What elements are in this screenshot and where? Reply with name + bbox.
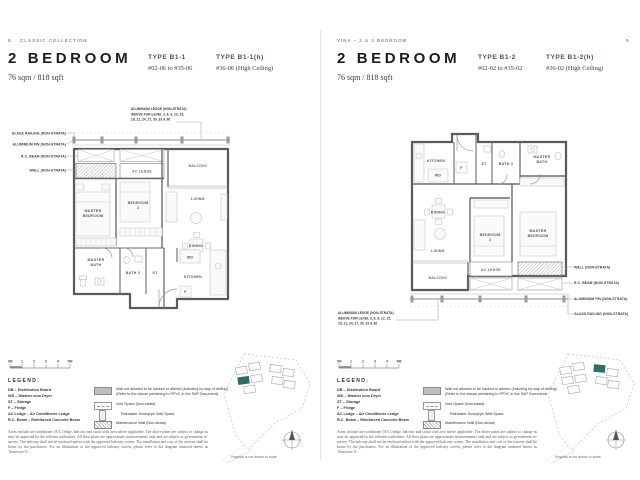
bath2-label: BATH 2 (499, 162, 514, 166)
legend-item: R.C. Beam – Reinforced Concrete Beam (8, 418, 94, 424)
running-head: VINA – 2 & 3 BEDROOM (337, 38, 407, 43)
callout-leader (396, 300, 438, 320)
ac-ledge-label: AC LEDGE (132, 170, 152, 174)
north-compass (606, 430, 626, 450)
highlighted-block (594, 364, 606, 372)
master-bedroom-label: MASTER (530, 229, 547, 233)
hatch-wall-swatch (423, 421, 441, 429)
master-bath-label: MASTER (88, 258, 105, 262)
keyplan-caption: Keyplan is not drawn to scale (555, 455, 601, 459)
type-name: TYPE B1-2(h) (546, 54, 603, 61)
keyplan: Keyplan is not drawn to scale (214, 350, 316, 464)
type-block: TYPE B1-1 #02-06 to #35-06 (148, 54, 192, 72)
rc-beam-callout: R.C. BEAM (NON-STRATA) (21, 155, 66, 159)
type-name: TYPE B1-1 (148, 54, 192, 61)
wall-callout: WALL (NON-STRATA) (30, 169, 66, 173)
aluminium-fin-callout: ALUMINIUM FIN (NON-STRATA) (12, 143, 66, 147)
master-bath-label: BATH (537, 160, 548, 164)
type-block: TYPE B1-1(h) #36-06 (High Ceiling) (216, 54, 273, 72)
downpipe-swatch (99, 410, 106, 421)
non-strata-wall-hatch (518, 262, 562, 276)
scale-bar: 0M 1 2 3 4 5M (337, 358, 407, 372)
bedroom2-label: BEDROOM (128, 201, 149, 205)
keyplan: Keyplan is not drawn to scale (538, 350, 640, 464)
scale-label: 5M (68, 360, 73, 364)
non-strata-wall-hatch (76, 164, 116, 179)
type-block: TYPE B1-2 #02-02 to #35-02 (478, 54, 522, 72)
scale-label: 3 (45, 360, 47, 364)
unit-area: 76 sqm / 818 sqft (337, 73, 393, 82)
aluminium-ledge-callout: ALUMINIUM LEDGE (NON-STRATA) (338, 311, 394, 315)
aluminium-ledge-callout: ALUMINIUM LEDGE (NON-STRATA) (131, 107, 187, 111)
aluminium-ledge-callout: ABOVE FOR LEVEL 3, 6, 9, 12, 15, (338, 316, 391, 320)
legend-heading: LEGEND: (8, 378, 40, 384)
type-units: #02-06 to #35-06 (148, 65, 192, 72)
legend-symbol-row: Maintenance Wall (Non-strata) (94, 421, 234, 429)
disclaimer-text: Areas include air-conditioner (A/C) ledg… (8, 430, 208, 455)
brochure-spread: 8 CLASSIC COLLECTION 2 BEDROOM 76 sqm / … (0, 0, 640, 480)
legend-abbreviations: DB – Distribution Board WD – Washer cum … (8, 388, 94, 423)
aluminium-ledge-callout: 18, 21, 24, 27, 30, 33 & 36 (338, 322, 377, 326)
type-units: #36-02 (High Ceiling) (546, 65, 603, 72)
master-bedroom-label: BEDROOM (83, 214, 104, 218)
ac-ledge-label: AC LEDGE (481, 268, 501, 272)
legend-symbol-row: Void Space (Non-strata) (94, 402, 234, 410)
legend-abbreviations: DB – Distribution Board WD – Washer cum … (337, 388, 423, 423)
type-name: TYPE B1-2 (478, 54, 522, 61)
page-number: 9 (626, 38, 629, 43)
page-number: 8 (8, 38, 11, 43)
storage-label: ST (481, 162, 487, 166)
legend-item: R.C. Beam – Reinforced Concrete Beam (337, 418, 423, 424)
void-space-swatch (423, 402, 441, 410)
type-block: TYPE B1-2(h) #36-02 (High Ceiling) (546, 54, 603, 72)
type-name: TYPE B1-1(h) (216, 54, 273, 61)
unit-area: 76 sqm / 818 sqft (8, 73, 64, 82)
disclaimer-text: Areas include air-conditioner (A/C) ledg… (337, 430, 537, 455)
glass-railing-callout: GLASS RAILING (NON-STRATA) (12, 132, 66, 136)
living-label: LIVING (431, 249, 445, 253)
legend-symbol-row: Wall not allowed to be hacked or altered… (94, 387, 234, 396)
master-bedroom-label: BEDROOM (528, 234, 549, 238)
balcony-label: BALCONY (429, 276, 448, 280)
washer-dryer-label: WD (187, 256, 194, 260)
void-space-swatch (94, 402, 112, 410)
dining-label: DINING (189, 244, 203, 248)
master-bath-label: MASTER (534, 155, 551, 159)
floor-plan-type-b1-2: AC LEDGE BALCONY (334, 112, 634, 349)
solid-wall-swatch (423, 387, 441, 395)
scale-label: 5M (397, 360, 402, 364)
scale-label: 2 (33, 360, 35, 364)
page-left: 8 CLASSIC COLLECTION 2 BEDROOM 76 sqm / … (0, 0, 320, 480)
highlighted-block (238, 376, 250, 384)
scale-label: 0M (337, 360, 342, 364)
living-label: LIVING (191, 197, 205, 201)
scale-label: 3 (374, 360, 376, 364)
aluminium-fin-callout: ALUMINIUM FIN (NON-STRATA) (574, 297, 628, 301)
page-title: 2 BEDROOM (337, 50, 460, 67)
balcony-label: BALCONY (189, 164, 208, 168)
type-units: #36-06 (High Ceiling) (216, 65, 273, 72)
road-line (544, 446, 568, 462)
callout-leader (176, 122, 201, 139)
legend-heading: LEGEND: (337, 378, 369, 384)
page-title: 2 BEDROOM (8, 50, 131, 67)
washer-dryer-label: WD (435, 174, 442, 178)
solid-wall-swatch (94, 387, 112, 395)
running-head: CLASSIC COLLECTION (20, 38, 88, 43)
scale-label: 4 (57, 360, 59, 364)
wall-callout: WALL (NON-STRATA) (574, 266, 610, 270)
scale-bar: 0M 1 2 3 4 5M (8, 358, 78, 372)
void-space-boxes (470, 278, 562, 290)
kitchen-label: KITCHEN (184, 275, 202, 279)
floor-plan-type-b1-1: AC LEDGE BALCONY (6, 100, 306, 337)
scale-label: 0M (8, 360, 13, 364)
callout-leader (67, 141, 72, 144)
callout-leader (568, 294, 573, 314)
bath2-label: BATH 2 (126, 271, 141, 275)
downpipe-swatch (428, 410, 435, 421)
type-units: #02-02 to #35-02 (478, 65, 522, 72)
hatch-wall-swatch (94, 421, 112, 429)
scale-label: 2 (362, 360, 364, 364)
aluminium-ledge-callout: ABOVE FOR LEVEL 3, 6, 9, 12, 15, (131, 112, 184, 116)
aluminium-ledge-callout: 18, 21, 24, 27, 30, 33 & 36 (131, 118, 170, 122)
storage-label: ST (152, 271, 158, 275)
glass-railing-callout: GLASS RAILING (NON-STRATA) (574, 312, 628, 316)
bedroom2-label: BEDROOM (480, 233, 501, 237)
page-right: VINA – 2 & 3 BEDROOM 9 2 BEDROOM 76 sqm … (320, 0, 640, 480)
bedroom2-label: 2 (137, 206, 139, 210)
master-bath-label: BATH (91, 263, 102, 267)
scale-label: 1 (350, 360, 352, 364)
bedroom2-label: 2 (489, 238, 491, 242)
scale-label: 1 (21, 360, 23, 364)
scale-label: 4 (386, 360, 388, 364)
rc-beam-callout: R.C. BEAM (NON-STRATA) (574, 281, 619, 285)
road-line (220, 446, 244, 462)
master-bedroom-label: MASTER (85, 209, 102, 213)
keyplan-caption: Keyplan is not drawn to scale (231, 455, 277, 459)
void-space-boxes (78, 150, 164, 162)
dining-label: DINING (431, 211, 445, 215)
north-compass (282, 430, 302, 450)
kitchen-label: KITCHEN (427, 159, 445, 163)
building-blocks (560, 362, 620, 393)
